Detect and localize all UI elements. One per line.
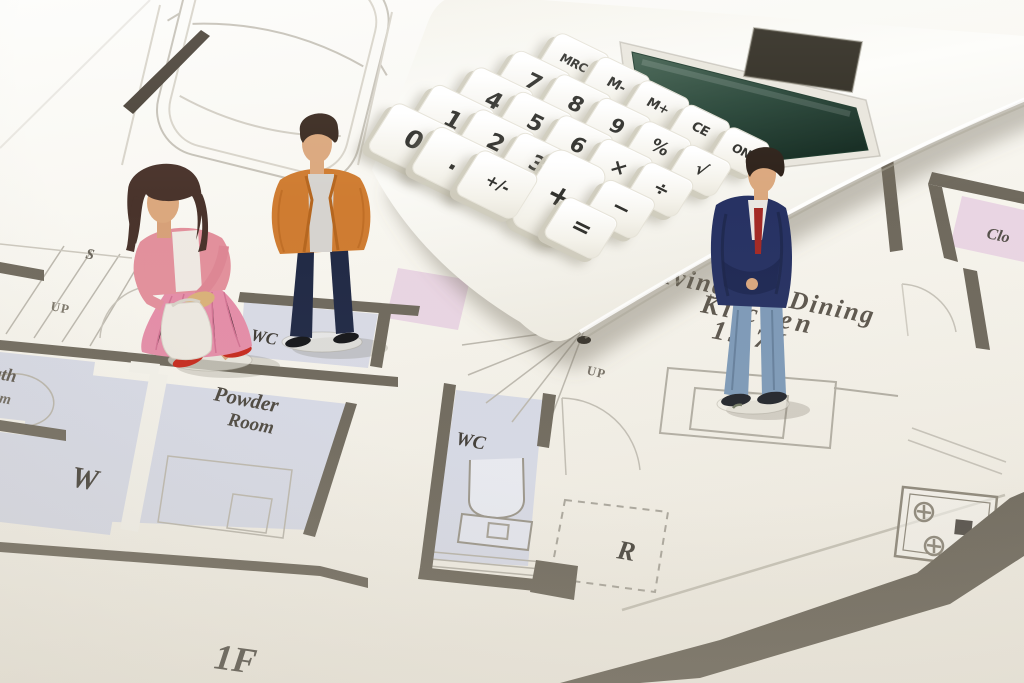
figure-man-navy [711,147,810,420]
figure-woman [126,164,280,378]
miniature-figures [0,0,1024,683]
photo-scene: Bath Room S UP UP W Powder Room WC WC R … [0,0,1024,683]
figure-man-orange [272,113,388,359]
